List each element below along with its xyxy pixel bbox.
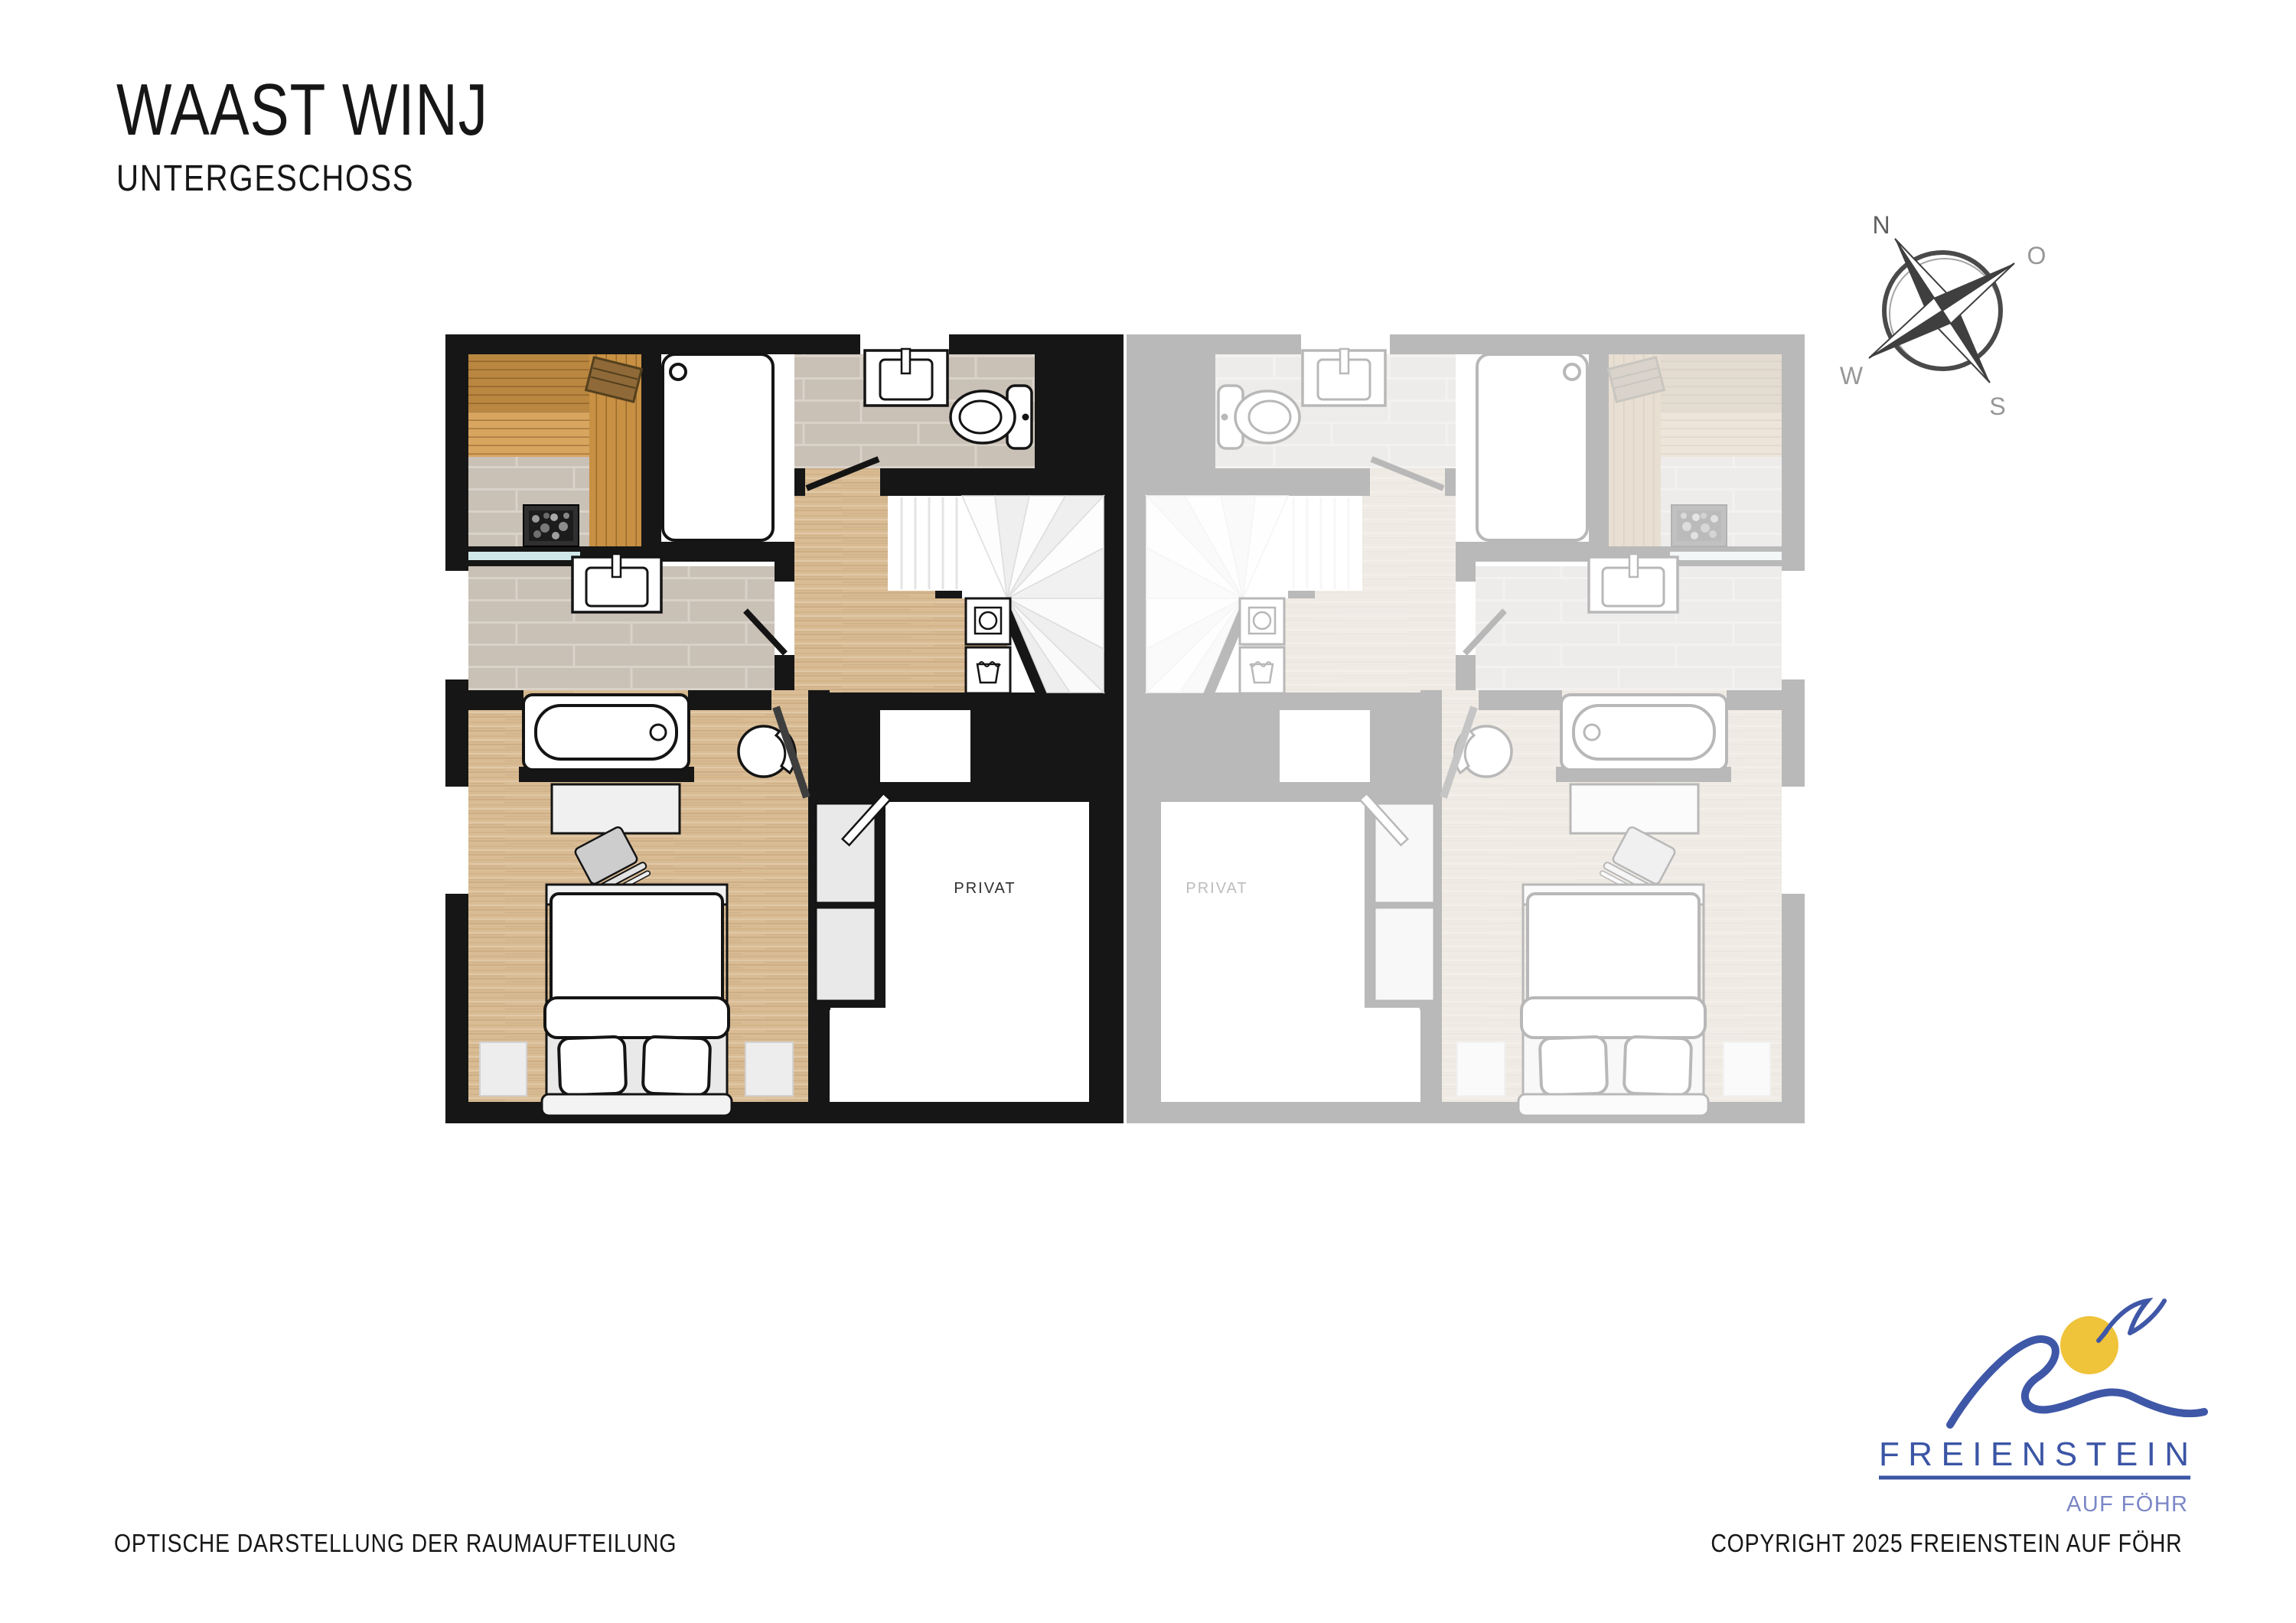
floor-plan: PRIVAT PRIVAT N O W S: [0, 0, 2296, 1623]
compass-rose-icon: N O W S: [1840, 211, 2047, 420]
brand-logo: FREIENSTEIN AUF FÖHR: [1879, 1301, 2204, 1517]
compass-east-label: O: [2027, 242, 2047, 269]
unit-ghost: [1127, 317, 1825, 1123]
brand-tagline: AUF FÖHR: [2066, 1492, 2190, 1517]
compass-west-label: W: [1840, 362, 1864, 389]
privat-room-label-ghost: PRIVAT: [1186, 880, 1247, 897]
privat-room-label: PRIVAT: [954, 880, 1016, 897]
copyright-text: COPYRIGHT 2025 FREIENSTEIN AUF FÖHR: [1711, 1530, 2183, 1556]
footer-caption: OPTISCHE DARSTELLUNG DER RAUMAUFTEILUNG: [114, 1530, 677, 1556]
compass-north-label: N: [1872, 211, 1890, 239]
brand-name: FREIENSTEIN: [1879, 1436, 2189, 1473]
unit-active: [426, 317, 1124, 1123]
page: WAAST WINJ UNTERGESCHOSS: [0, 0, 2296, 1623]
compass-south-label: S: [1989, 393, 2005, 420]
